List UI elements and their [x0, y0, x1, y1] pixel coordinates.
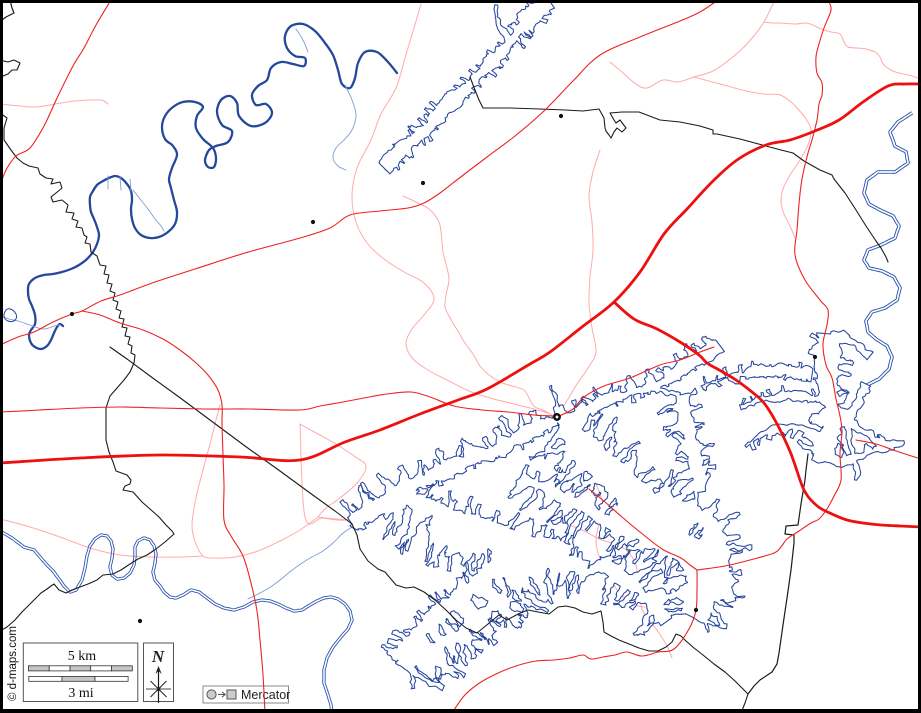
- svg-text:N: N: [151, 647, 165, 666]
- svg-text:Mercator: Mercator: [241, 688, 290, 702]
- svg-text:3 mi: 3 mi: [68, 686, 93, 701]
- svg-text:5 km: 5 km: [68, 649, 97, 664]
- svg-text:© d-maps.com: © d-maps.com: [7, 626, 19, 701]
